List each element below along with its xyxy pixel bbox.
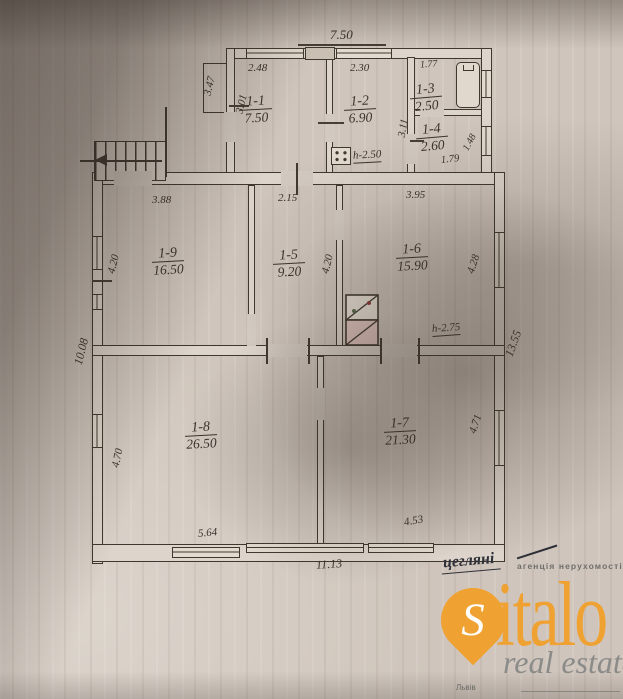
dimension-label: 4.28 bbox=[465, 253, 482, 275]
dimension-label: 13.55 bbox=[502, 328, 525, 359]
dimension-tick bbox=[418, 338, 420, 364]
tap-icon bbox=[463, 65, 474, 71]
window bbox=[494, 232, 505, 288]
room-number: 1-7 bbox=[383, 415, 416, 433]
material-note: цегляні bbox=[440, 549, 501, 574]
brand-city: Львів bbox=[456, 683, 476, 692]
room-label-1-7: 1-7 21.30 bbox=[371, 413, 429, 450]
window bbox=[246, 48, 304, 59]
note-underline-stroke bbox=[517, 545, 557, 559]
agency-tagline: агенція нерухомості bbox=[517, 561, 623, 571]
dimension-tick bbox=[266, 338, 268, 364]
dimension-label: 5.64 bbox=[198, 526, 218, 540]
wall-upper-right bbox=[481, 48, 492, 180]
wall-18-17 bbox=[317, 356, 324, 546]
door-opening bbox=[247, 314, 256, 346]
dimension-tick bbox=[380, 338, 382, 364]
room-area: 9.20 bbox=[261, 263, 318, 282]
room-area: 26.50 bbox=[173, 435, 230, 454]
window bbox=[92, 294, 103, 310]
dimension-label: 11.13 bbox=[316, 556, 343, 573]
room-number: 1-8 bbox=[184, 419, 217, 437]
dimension-label: 1.79 bbox=[440, 153, 459, 166]
dimension-label: 3.88 bbox=[152, 194, 171, 206]
dimension-line bbox=[298, 44, 386, 46]
window bbox=[336, 48, 392, 59]
dimension-label: 4.53 bbox=[403, 513, 424, 528]
dimension-label: 2.30 bbox=[350, 62, 369, 74]
bathtub-icon bbox=[456, 62, 480, 108]
room-area: 16.50 bbox=[140, 261, 197, 280]
room-area: 21.30 bbox=[372, 431, 429, 450]
room-label-1-3: 1-3 2.50 bbox=[397, 78, 456, 117]
room-area: 6.90 bbox=[332, 109, 389, 128]
dimension-label: 3.95 bbox=[406, 189, 425, 201]
room-label-1-6: 1-6 15.90 bbox=[383, 239, 441, 276]
door-opening bbox=[114, 171, 152, 186]
stairs-direction-arrow bbox=[80, 160, 162, 162]
window bbox=[92, 236, 103, 270]
dimension-label: 4.20 bbox=[319, 253, 335, 275]
gas-stove-icon bbox=[331, 147, 351, 165]
dimension-label: 1.77 bbox=[420, 58, 438, 70]
height-label: h-2.50 bbox=[353, 148, 382, 163]
window bbox=[494, 410, 505, 466]
dimension-label: 4.70 bbox=[110, 447, 126, 468]
window bbox=[92, 414, 103, 448]
dimension-line bbox=[92, 280, 112, 282]
window bbox=[246, 543, 364, 553]
room-area: 15.90 bbox=[384, 257, 441, 276]
dimension-label: 10.08 bbox=[71, 337, 92, 367]
room-number: 1-6 bbox=[395, 241, 428, 259]
dimension-label: 2.48 bbox=[248, 62, 267, 74]
door-opening bbox=[268, 344, 307, 357]
brand-divider-line bbox=[521, 691, 620, 692]
window bbox=[368, 543, 434, 553]
room-label-1-8: 1-8 26.50 bbox=[172, 417, 230, 454]
height-label: h-2.75 bbox=[432, 321, 461, 337]
room-number: 1-2 bbox=[343, 93, 376, 111]
dimension-label: 7.50 bbox=[330, 27, 353, 43]
room-number: 1-9 bbox=[151, 245, 184, 263]
room-number: 1-5 bbox=[272, 247, 305, 265]
brand-subtitle: real estate bbox=[503, 644, 623, 681]
dimension-tick bbox=[296, 163, 298, 195]
pin-letter: S bbox=[441, 588, 505, 652]
dimension-label: 4.20 bbox=[105, 253, 121, 275]
dimension-tick bbox=[308, 338, 310, 364]
room-label-1-2: 1-2 6.90 bbox=[331, 91, 389, 128]
location-pin-icon: S bbox=[428, 575, 519, 666]
dimension-label: 2.15 bbox=[278, 192, 297, 204]
room-label-1-4: 1-4 2.60 bbox=[403, 118, 462, 157]
door-opening bbox=[382, 344, 417, 357]
door-opening bbox=[316, 388, 325, 420]
wall-main-right bbox=[494, 172, 505, 558]
room-label-1-5: 1-5 9.20 bbox=[260, 245, 318, 282]
floor-plan-photo: 1-1 7.50 1-2 6.90 1-3 2.50 1-4 2.60 1-9 … bbox=[0, 0, 623, 699]
door-opening bbox=[335, 210, 344, 240]
furnace-icon bbox=[345, 294, 379, 351]
brand-name: italo bbox=[496, 568, 606, 660]
dimension-label: 1.48 bbox=[461, 132, 479, 153]
dimension-label: 4.71 bbox=[467, 413, 484, 435]
wall-pier bbox=[305, 47, 335, 60]
stairs-arrow-head-icon bbox=[95, 154, 107, 166]
window bbox=[481, 126, 492, 156]
room-label-1-9: 1-9 16.50 bbox=[139, 243, 197, 280]
window bbox=[481, 70, 492, 98]
wall-main-left bbox=[92, 172, 103, 564]
window bbox=[172, 547, 240, 558]
